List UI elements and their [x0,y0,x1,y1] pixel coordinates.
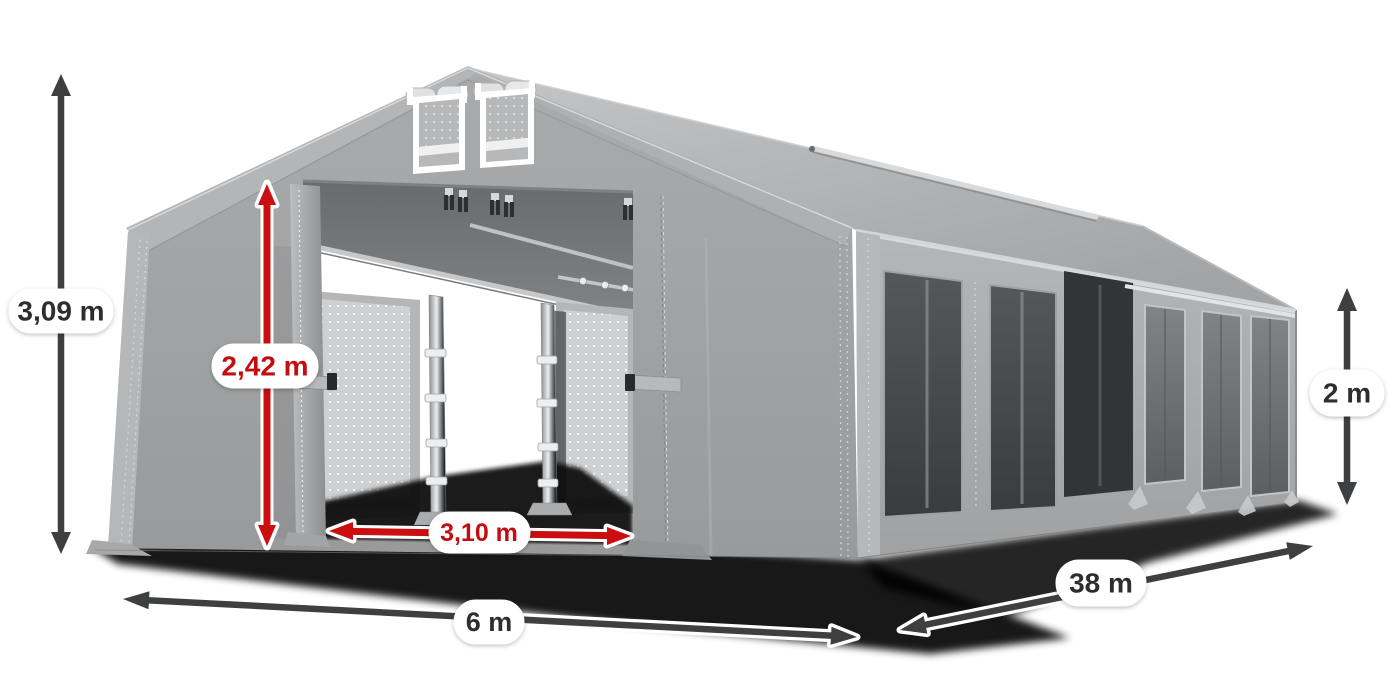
front-corner-post-fabric [856,230,880,558]
dimension-label-door-width: 3,10 m [440,519,518,547]
dimension-label-total-height: 3,09 m [17,296,104,327]
dimension-label-wall-height: 2 m [1323,378,1371,409]
dimension-label-door-height: 2,42 m [221,351,308,382]
ridge-pole-connector [809,146,815,152]
dimension-label-front-width: 6 m [466,607,513,637]
tent-dimensions-illustration: 3,09 m 2,42 m 3,10 m [0,0,1400,700]
side-window-2 [990,285,1056,511]
entrance-opening [300,180,640,546]
scene: 3,09 m 2,42 m 3,10 m [0,0,1400,700]
door-strap-right [629,375,681,392]
side-window-3 [1145,305,1185,484]
door-strap-buckle-left [327,373,337,390]
gable-vent-right [474,81,536,168]
side-window-5 [1251,316,1289,496]
dimension-total-height: 3,09 m [11,72,111,556]
side-window-4 [1202,311,1241,491]
gable-vent-left [406,86,468,174]
dimension-wall-height: 2 m [1312,287,1382,506]
side-window-1 [884,271,962,517]
dimension-label-side-length: 38 m [1069,568,1133,599]
door-strap-buckle-right [625,374,635,391]
